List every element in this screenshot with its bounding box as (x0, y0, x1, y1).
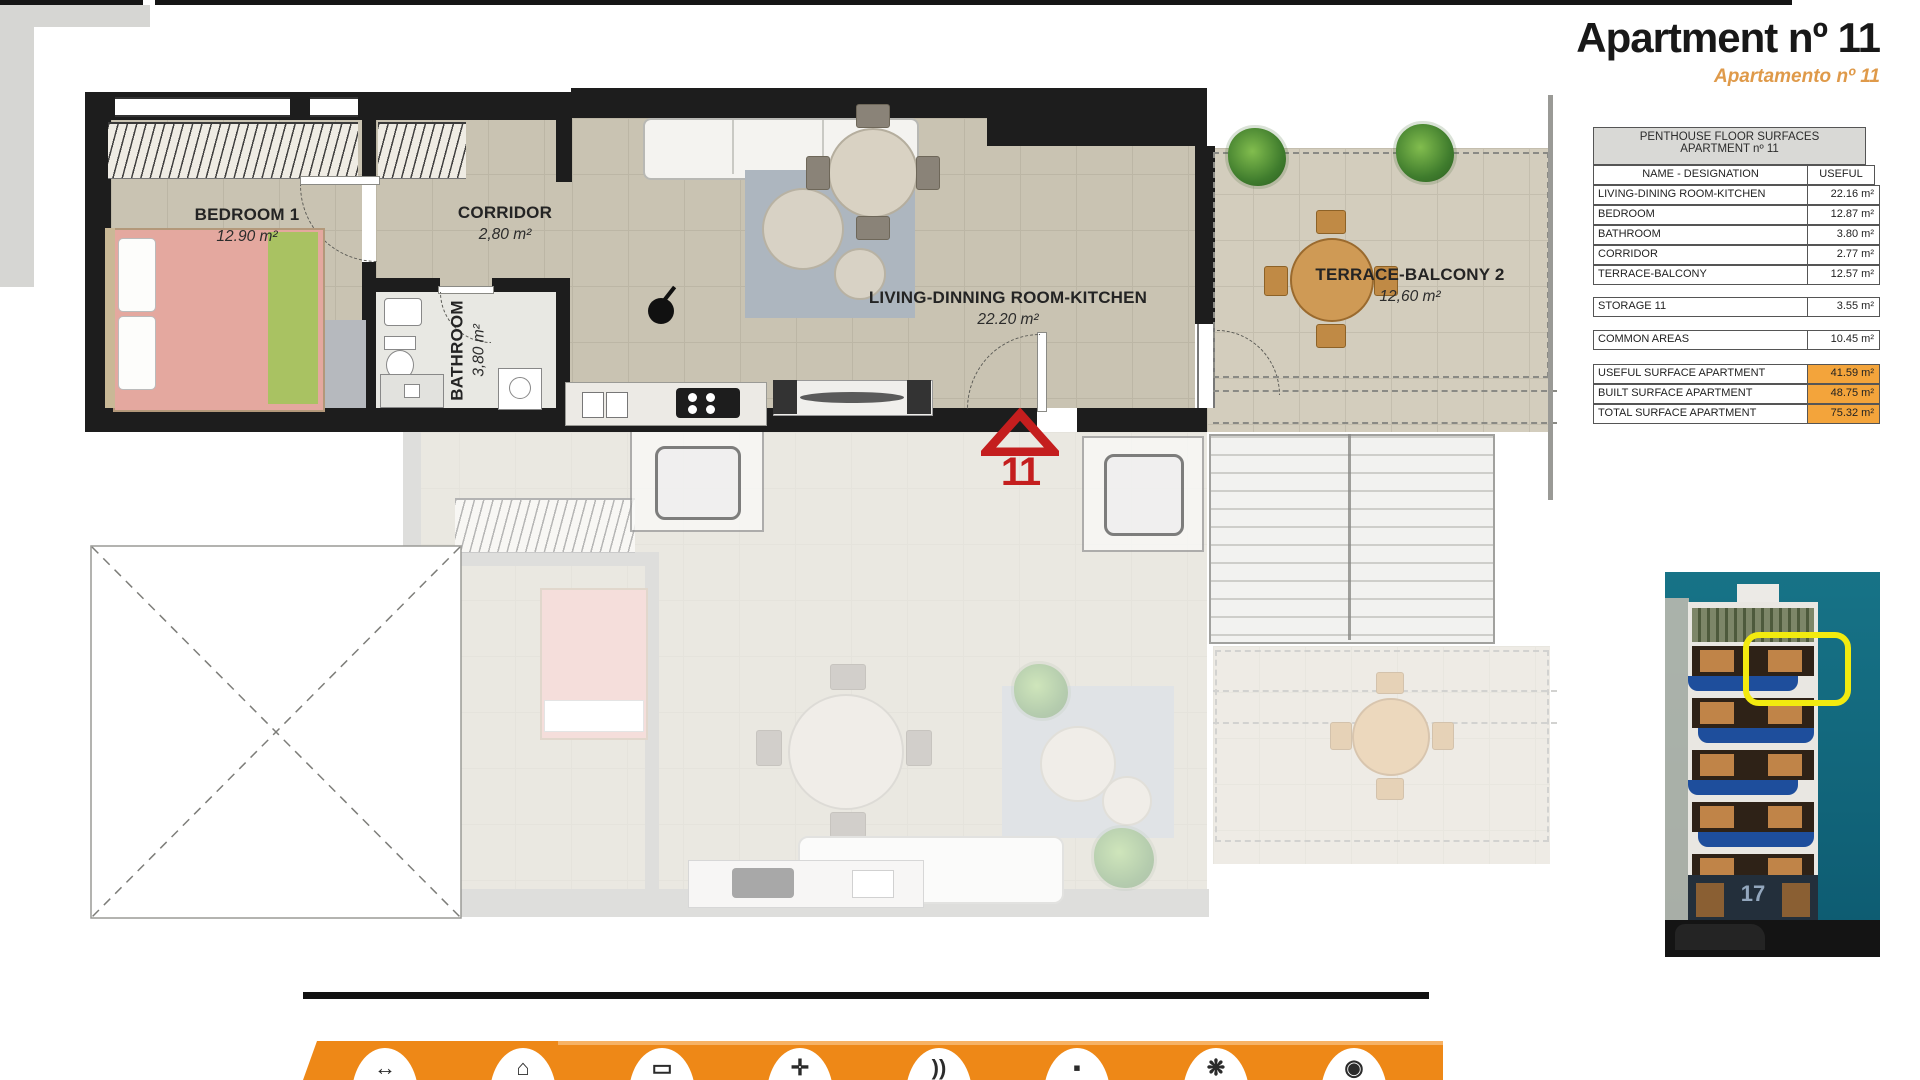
building-roof-box (1737, 584, 1779, 604)
stairwell (1209, 434, 1495, 644)
window-bedroom-2 (310, 97, 358, 117)
bathroom-toilet-tank (384, 336, 416, 350)
total-row: BUILT SURFACE APARTMENT 48.75 m² (1593, 384, 1880, 404)
ghost-closet (455, 498, 635, 553)
ghost-kitchen (688, 860, 924, 908)
corridor-closet (378, 122, 466, 179)
ghost-rug (1002, 686, 1174, 838)
bed-pillow-1 (118, 238, 156, 312)
footer-icon-circle: ▭ (629, 1048, 695, 1080)
tv-screen (800, 392, 904, 403)
bed-headboard (105, 228, 115, 408)
marker-icon: ✛ (767, 1057, 833, 1079)
window-bedroom (115, 97, 290, 117)
wall-bottom-right (1077, 408, 1207, 432)
air-icon: ❋ (1183, 1057, 1249, 1079)
table-row: BATHROOM3.80 m² (1593, 225, 1880, 245)
stove-burner (688, 405, 697, 414)
dining-chair (856, 104, 890, 128)
furniture-icon: ▪ (1044, 1057, 1110, 1079)
terrace-chair (1316, 210, 1346, 234)
footer-icon-circle: ⌂ (490, 1048, 556, 1080)
washing-machine-drum (509, 377, 531, 399)
ghost-dining-table (788, 694, 904, 810)
wall-living-terrace (1195, 146, 1215, 324)
balcony-awning (1688, 780, 1798, 795)
terrace-dashline-1 (1213, 390, 1557, 392)
dining-chair (856, 216, 890, 240)
storage-row: STORAGE 113.55 m² (1593, 297, 1880, 317)
tv-unit-end-r (907, 380, 931, 414)
living-label: LIVING-DINNING ROOM-KITCHEN 22.20 m² (853, 288, 1163, 329)
bedroom-label: BEDROOM 1 12.90 m² (147, 205, 347, 246)
footer-icon-circle: ▪ (1044, 1048, 1110, 1080)
ghost-sofa (798, 836, 1064, 904)
balcony-awning (1698, 832, 1814, 847)
footer-icon-circle: ↔ (352, 1048, 418, 1080)
total-row: USEFUL SURFACE APARTMENT 41.59 m² (1593, 364, 1880, 384)
surfaces-table-title-1: PENTHOUSE FLOOR SURFACES (1594, 131, 1865, 143)
footer-icon-circle: )) (906, 1048, 972, 1080)
dining-chair (916, 156, 940, 190)
terrace-plant-right (1396, 124, 1454, 182)
table-row: CORRIDOR2.77 m² (1593, 245, 1880, 265)
footer-bar: ↔ ⌂ ▭ ✛ )) ▪ ❋ ◉ (303, 1041, 1443, 1080)
wall-bathroom-top-a (362, 278, 440, 292)
waves-icon: )) (906, 1057, 972, 1079)
stove-burner (706, 405, 715, 414)
bed-pillow-2 (118, 316, 156, 390)
street-number: 17 (1728, 881, 1778, 907)
bedroom-closet (108, 122, 358, 179)
footer-bar-highlight (558, 1041, 1443, 1045)
shower-drain (404, 384, 420, 398)
building-photo: 17 (1665, 572, 1880, 957)
dashed-cross-box (90, 545, 462, 919)
unit-marker-triangle (981, 408, 1059, 456)
corridor-label: CORRIDOR 2,80 m² (430, 203, 580, 244)
kitchen-sink-1 (582, 392, 604, 418)
wall-corridor-living (556, 92, 572, 182)
car-silhouette (1675, 924, 1765, 950)
footer-icon-circle: ◉ (1321, 1048, 1387, 1080)
bathroom-sink (384, 298, 422, 326)
terrace-chair (1264, 266, 1288, 296)
surfaces-table-title-2: APARTMENT nº 11 (1594, 143, 1865, 155)
footer-icon-circle: ✛ (767, 1048, 833, 1080)
sofa-cushion-line-1 (732, 120, 734, 174)
bed-green-throw (268, 232, 318, 404)
total-row: TOTAL SURFACE APARTMENT 75.32 m² (1593, 404, 1880, 424)
neighbor-building (1665, 598, 1689, 928)
wall-top-living (571, 88, 987, 118)
dining-table (828, 128, 918, 218)
elevator-b-cab (1104, 454, 1184, 536)
stove-burner (706, 393, 715, 402)
balcony-awning (1698, 728, 1814, 743)
balcony-floor (1692, 750, 1814, 780)
stairwell-divider (1348, 434, 1351, 640)
brochure-page: Apartment nº 11 Apartamento nº 11 (0, 0, 1920, 1080)
wall-bedroom-right-a (362, 92, 376, 180)
apartment-highlight-box (1743, 632, 1851, 706)
ghost-bed (540, 588, 648, 740)
terrace-dashline-2 (1213, 422, 1557, 424)
terrace-label: TERRACE-BALCONY 2 12,60 m² (1300, 265, 1520, 306)
kitchen-sink-2 (606, 392, 628, 418)
terrace-chair (1316, 324, 1346, 348)
bathroom-label: BATHROOM 3,80 m² (448, 276, 489, 426)
wall-shaft-block (987, 88, 1207, 146)
unit-marker-number: 11 (989, 450, 1051, 495)
elevator-a-cab (655, 446, 741, 520)
surfaces-col-headers: NAME - DESIGNATION USEFUL (1593, 165, 1875, 185)
bedroom-door-leaf (300, 176, 380, 185)
dining-chair (806, 156, 830, 190)
surfaces-table-header: PENTHOUSE FLOOR SURFACES APARTMENT nº 11 (1593, 127, 1866, 165)
balcony-floor (1692, 802, 1814, 832)
house-icon: ⌂ (490, 1057, 556, 1079)
terrace-right-edge (1548, 95, 1553, 500)
table-row: LIVING-DINING ROOM-KITCHEN22.16 m² (1593, 185, 1880, 205)
table-row: BEDROOM12.87 m² (1593, 205, 1880, 225)
bed-icon: ▭ (629, 1057, 695, 1079)
table-row: TERRACE-BALCONY12.57 m² (1593, 265, 1880, 285)
common-areas-row: COMMON AREAS10.45 m² (1593, 330, 1880, 350)
coffee-table-large (762, 188, 844, 270)
ground-floor: 17 (1688, 875, 1818, 920)
camera-icon: ◉ (1321, 1057, 1387, 1079)
tv-unit-end-l (773, 380, 797, 414)
footer-rule (303, 992, 1429, 999)
terrace-plant-left (1228, 128, 1286, 186)
footer-icon-circle: ❋ (1183, 1048, 1249, 1080)
dimensions-icon: ↔ (352, 1057, 418, 1079)
stove-burner (688, 393, 697, 402)
